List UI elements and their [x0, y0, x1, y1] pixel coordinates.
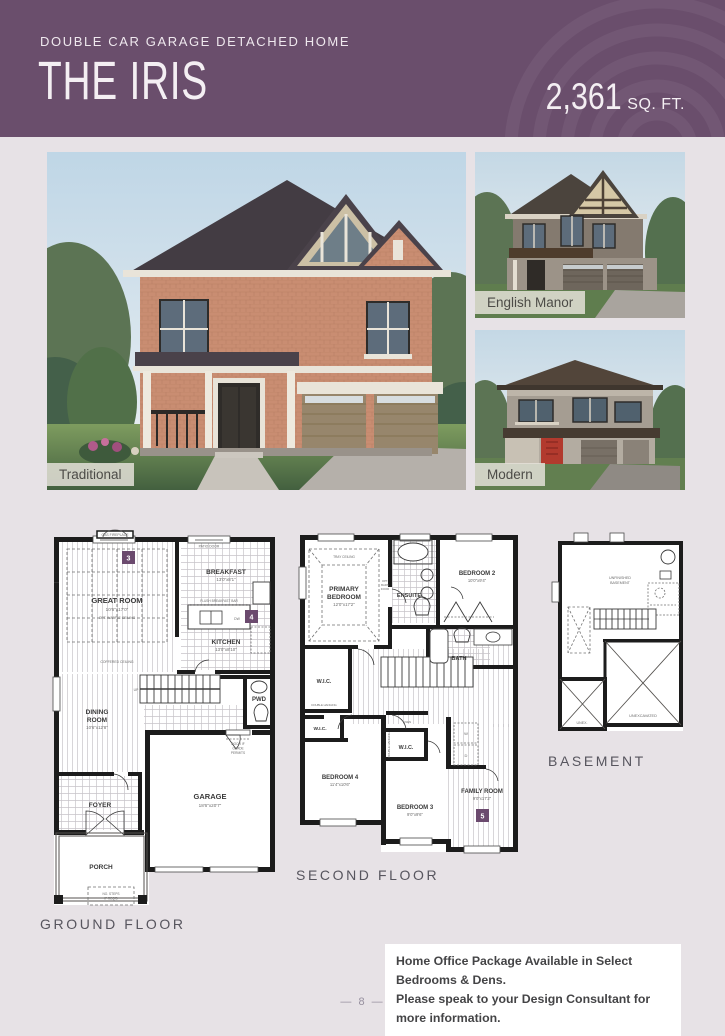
wic-bed4-label: W.I.C. [313, 726, 326, 732]
svg-text:12'0"x17'2": 12'0"x17'2" [333, 602, 355, 607]
up-label: UP [134, 688, 139, 692]
footer-dash-left: — [340, 996, 353, 1008]
page-title: THE IRIS [38, 50, 208, 112]
svg-text:18'6"x20'7": 18'6"x20'7" [199, 803, 222, 808]
header-banner: DOUBLE CAR GARAGE DETACHED HOME THE IRIS… [0, 0, 725, 137]
second-floor-title: SECOND FLOOR [296, 867, 526, 883]
page-footer: — 8 — [0, 996, 725, 1008]
svg-text:10'6"x12'8": 10'6"x12'8" [86, 725, 108, 730]
floorplan-ground: 3 4 GAS FIREPLACE PATIO DOOR GREAT ROOM … [40, 527, 290, 932]
primary-bedroom-label: PRIMARY [329, 586, 359, 593]
svg-text:DOUBLE HANGING: DOUBLE HANGING [387, 732, 391, 757]
unfinished-basement-label: UNFINISHED [609, 576, 631, 580]
unexcavated-label: UNEXCAVATED [629, 714, 657, 718]
svg-text:BEDROOM: BEDROOM [327, 594, 361, 601]
svg-text:10'0"x9'4": 10'0"x9'4" [468, 578, 487, 583]
tray-ceiling-label: TRAY CEILING [333, 555, 355, 559]
header-subtitle: DOUBLE CAR GARAGE DETACHED HOME [40, 34, 350, 49]
sqft-unit: SQ. FT. [627, 96, 685, 114]
steps-label: NO. STEPS [102, 892, 119, 896]
svg-text:10'6"x17'0": 10'6"x17'0" [106, 607, 129, 612]
photo-label-modern: Modern [475, 463, 545, 486]
svg-text:13'0"x8'10": 13'0"x8'10" [215, 647, 237, 652]
basement-title: BASEMENT [548, 753, 718, 769]
home-office-note: Home Office Package Available in Select … [385, 944, 681, 1036]
svg-text:11'4"x10'6": 11'4"x10'6" [330, 782, 351, 787]
patio-door-label: PATIO DOOR [199, 545, 220, 549]
flush-bar-label: FLUSH BREAKFAST BAR [200, 599, 238, 603]
pwd-label: PWD [252, 697, 267, 703]
svg-text:PERMITS: PERMITS [231, 751, 245, 755]
double-hanging-label: DOUBLE HANGING [311, 703, 336, 707]
marker-4: 4 [250, 615, 254, 622]
ground-floor-drawing: 3 4 GAS FIREPLACE PATIO DOOR GREAT ROOM … [40, 527, 290, 907]
svg-text:9'0"x9'6": 9'0"x9'6" [407, 812, 423, 817]
dryer-label: D [465, 753, 468, 758]
svg-text:DOOR: DOOR [381, 587, 389, 591]
garage-label: GARAGE [194, 792, 227, 801]
svg-text:OPT. WAFFLE CEILING: OPT. WAFFLE CEILING [99, 616, 136, 620]
linen-label: LINEN [403, 720, 411, 724]
sqft-number: 2,361 [545, 76, 621, 118]
bedroom2-label: BEDROOM 2 [459, 571, 496, 577]
marker-3: 3 [127, 556, 131, 563]
floorplan-basement: UNFINISHED BASEMENT UNEXCAVATED UNEX. BA… [548, 527, 718, 769]
great-room-label: GREAT ROOM [91, 596, 142, 605]
elevation-photo-modern: Modern [475, 330, 685, 490]
bedroom3-label: BEDROOM 3 [397, 805, 434, 811]
breakfast-label: BREAKFAST [206, 569, 246, 576]
washer-label: W [464, 731, 468, 736]
marker-5: 5 [481, 814, 485, 821]
svg-text:BASEMENT: BASEMENT [610, 581, 631, 585]
floorplan-second: TRAY CEILING PRIMARY BEDROOM 12'0"x17'2"… [296, 527, 526, 883]
kitchen-label: KITCHEN [212, 639, 241, 646]
ground-floor-title: GROUND FLOOR [40, 916, 290, 932]
dining-room-label: DINING [86, 709, 109, 716]
svg-text:GRADE: GRADE [232, 747, 243, 751]
page-number: 8 [358, 996, 366, 1008]
wic-primary-label: W.I.C. [317, 679, 332, 685]
unex-label: UNEX. [577, 721, 588, 725]
traditional-house-illustration [47, 152, 466, 490]
photo-label-english-manor: English Manor [475, 291, 585, 314]
elevation-photo-english-manor: English Manor [475, 152, 685, 318]
svg-text:13'0"x8'1": 13'0"x8'1" [216, 577, 236, 582]
footer-dash-right: — [372, 996, 385, 1008]
note-line1: Home Office Package Available in Select … [396, 954, 632, 987]
svg-text:COFFERED CEILING: COFFERED CEILING [100, 660, 134, 664]
family-room-label: FAMILY ROOM [461, 789, 503, 795]
elevation-photo-traditional: Traditional [47, 152, 466, 490]
svg-text:ROOM: ROOM [87, 717, 107, 724]
svg-text:IF REQ'D: IF REQ'D [104, 897, 118, 901]
ensuite-label: ENSUITE [397, 593, 422, 599]
porch-label: PORCH [89, 864, 113, 871]
wic-bed3-label: W.I.C. [399, 745, 414, 751]
foyer-label: FOYER [89, 802, 112, 809]
gas-fireplace-label: GAS FIREPLACE [102, 533, 130, 537]
second-floor-drawing: TRAY CEILING PRIMARY BEDROOM 12'0"x17'2"… [296, 527, 526, 857]
square-footage: 2,361 SQ. FT. [529, 76, 685, 118]
bedroom4-label: BEDROOM 4 [322, 775, 359, 781]
basement-drawing: UNFINISHED BASEMENT UNEXCAVATED UNEX. [548, 527, 718, 742]
photo-label-traditional: Traditional [47, 463, 134, 486]
bath-label: BATH [451, 656, 466, 662]
door-grade-label: DOOR IF [231, 742, 244, 746]
dw-label: DW [234, 617, 240, 621]
svg-text:9'0"x17'2": 9'0"x17'2" [473, 796, 492, 801]
